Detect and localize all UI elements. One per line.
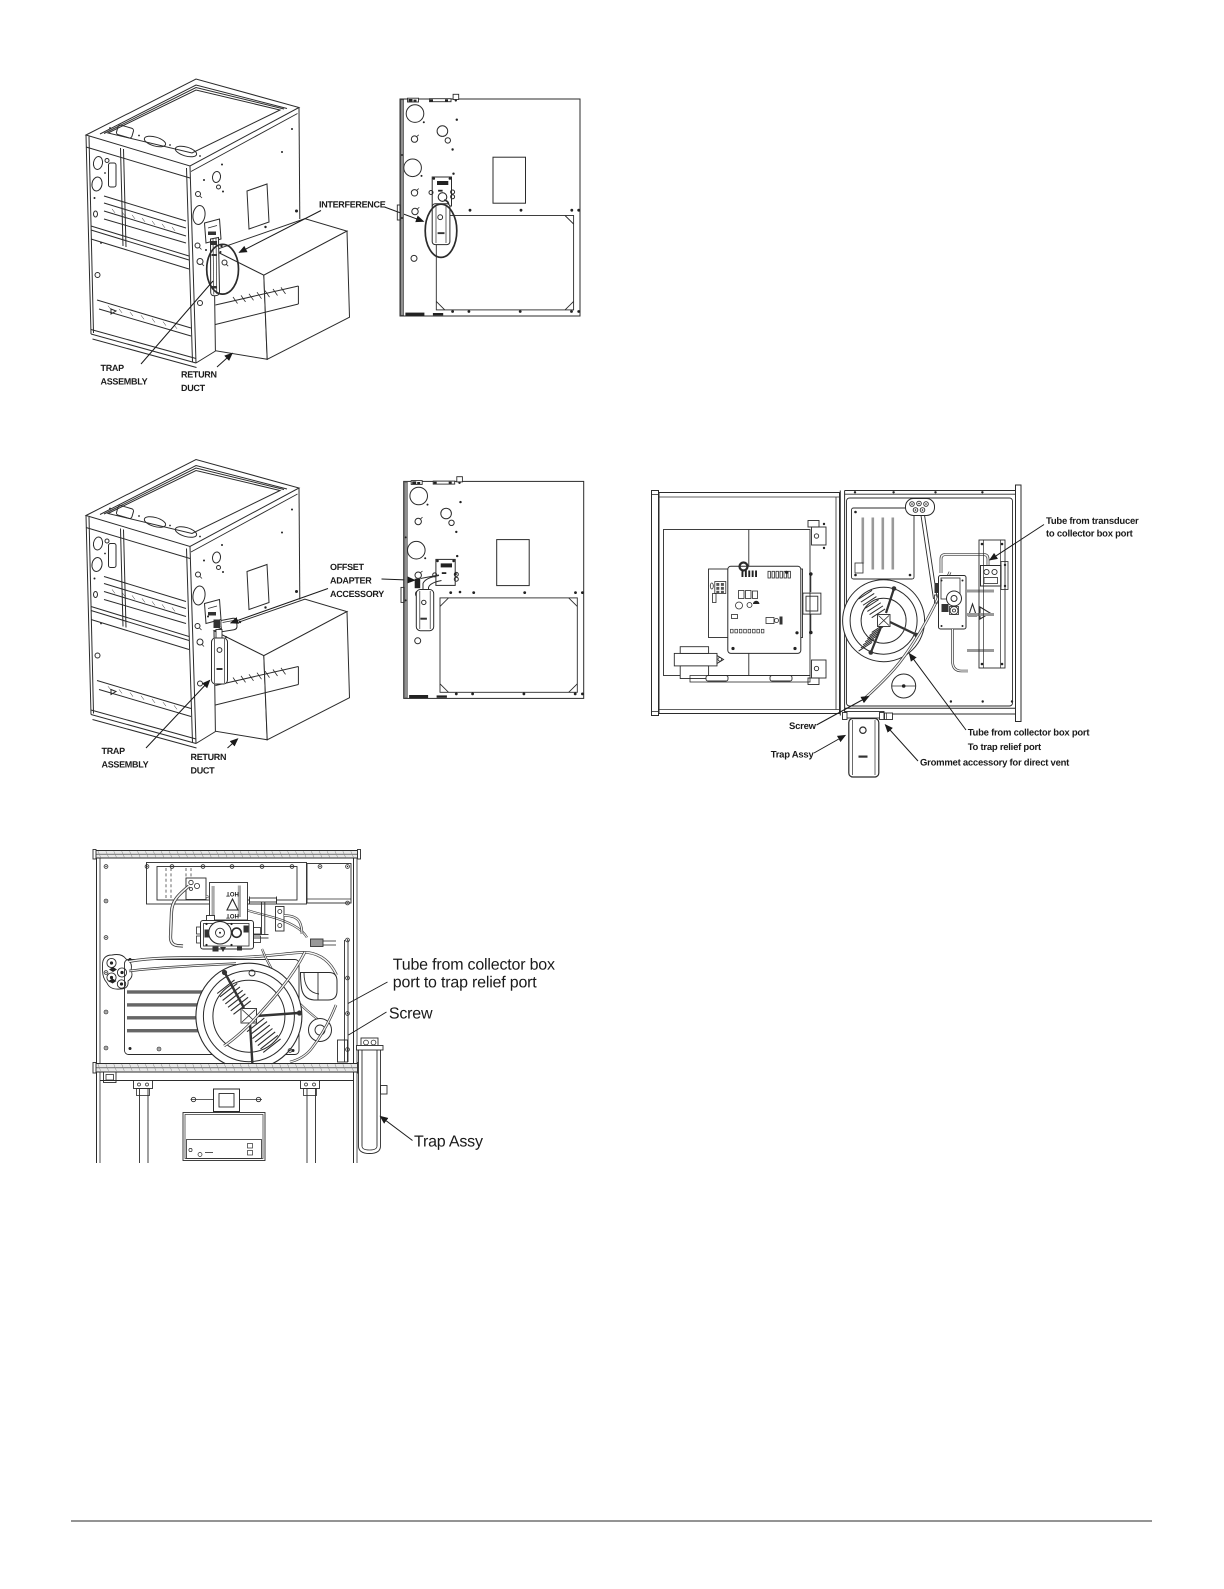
svg-text:Tube from collector box: Tube from collector box xyxy=(393,957,555,974)
svg-text:Trap Assy: Trap Assy xyxy=(414,1134,483,1151)
svg-text:OFFSET: OFFSET xyxy=(330,562,365,572)
svg-text:INTERFERENCE: INTERFERENCE xyxy=(319,200,386,210)
svg-text:To trap relief port: To trap relief port xyxy=(968,742,1042,753)
svg-text:Screw: Screw xyxy=(389,1006,433,1023)
svg-text:RETURN: RETURN xyxy=(190,752,226,762)
svg-text:HOT: HOT xyxy=(226,912,239,918)
svg-text:ACCESSORY: ACCESSORY xyxy=(330,589,384,599)
svg-text:Trap Assy: Trap Assy xyxy=(771,750,815,761)
svg-text:RETURN: RETURN xyxy=(181,370,217,380)
svg-text:Screw: Screw xyxy=(789,721,817,732)
svg-text:Grommet accessory for direct v: Grommet accessory for direct vent xyxy=(920,758,1070,769)
svg-text:ADAPTER: ADAPTER xyxy=(330,576,372,586)
svg-text:TRAP: TRAP xyxy=(100,363,124,373)
svg-text:HOT: HOT xyxy=(226,890,239,896)
svg-text:to collector box port: to collector box port xyxy=(1046,529,1134,540)
svg-text:Tube from transducer: Tube from transducer xyxy=(1046,516,1139,527)
svg-text:TRAP: TRAP xyxy=(101,746,125,756)
svg-text:ASSEMBLY: ASSEMBLY xyxy=(101,760,148,770)
svg-text:ASSEMBLY: ASSEMBLY xyxy=(100,377,147,387)
svg-text:DUCT: DUCT xyxy=(190,766,215,776)
svg-text:Tube from collector box port: Tube from collector box port xyxy=(968,728,1091,739)
svg-text:port to trap relief port: port to trap relief port xyxy=(393,974,537,991)
svg-text:DUCT: DUCT xyxy=(181,383,206,393)
